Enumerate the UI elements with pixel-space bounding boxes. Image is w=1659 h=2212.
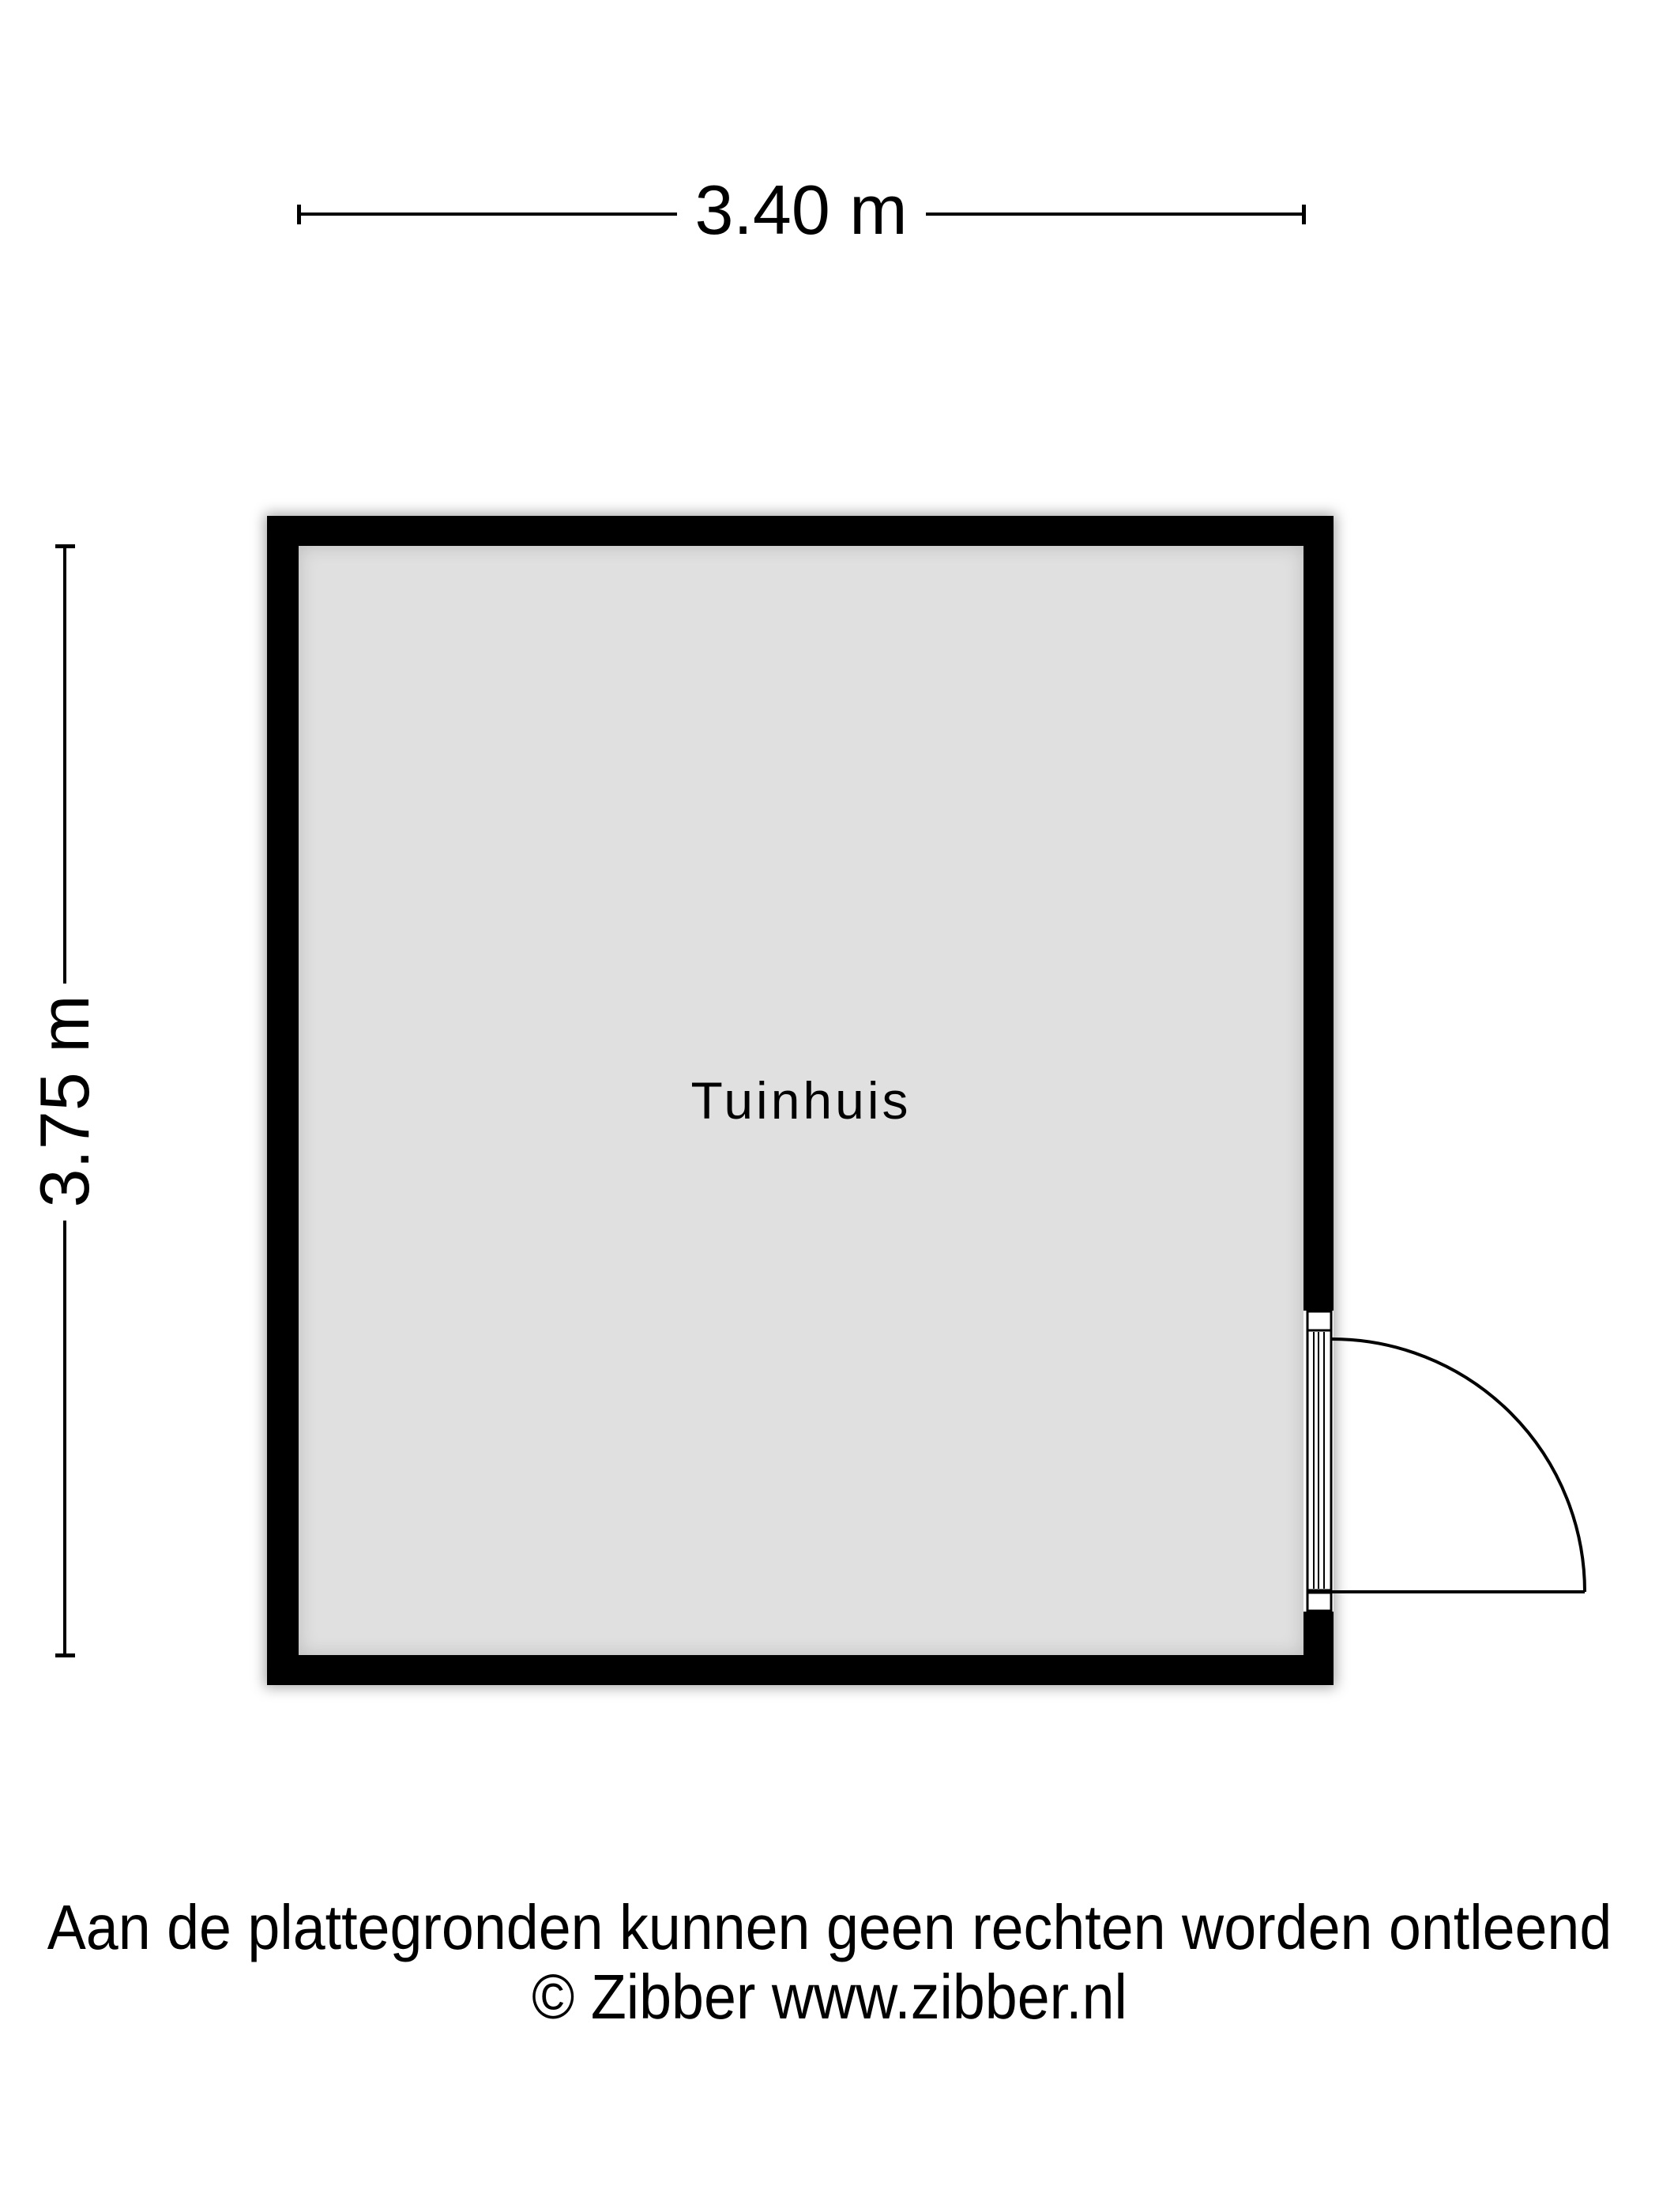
width-dimension-tick-left — [297, 205, 301, 224]
width-dimension-label: 3.40 m — [694, 175, 907, 245]
door-jamb-top — [1307, 1311, 1331, 1330]
height-dimension-tick-top — [55, 544, 75, 548]
height-dimension-tick-bottom — [55, 1653, 75, 1657]
width-dimension-line-left — [299, 213, 677, 216]
floorplan-canvas: 3.40 m 3.75 m Tuinhuis Aan de plattegron… — [0, 0, 1659, 2212]
width-dimension-line-right — [926, 213, 1303, 216]
door — [1264, 1296, 1619, 1627]
footer-copyright: © Zibber www.zibber.nl — [532, 1966, 1127, 2029]
height-dimension-label: 3.75 m — [30, 995, 100, 1207]
door-jamb-bottom — [1307, 1593, 1331, 1611]
height-dimension-line-top — [63, 546, 66, 984]
footer-disclaimer: Aan de plattegronden kunnen geen rechten… — [47, 1896, 1612, 1959]
width-dimension-tick-right — [1302, 205, 1306, 224]
door-swing-arc — [1332, 1339, 1585, 1592]
height-dimension-line-bottom — [63, 1221, 66, 1657]
room-label: Tuinhuis — [690, 1074, 911, 1127]
